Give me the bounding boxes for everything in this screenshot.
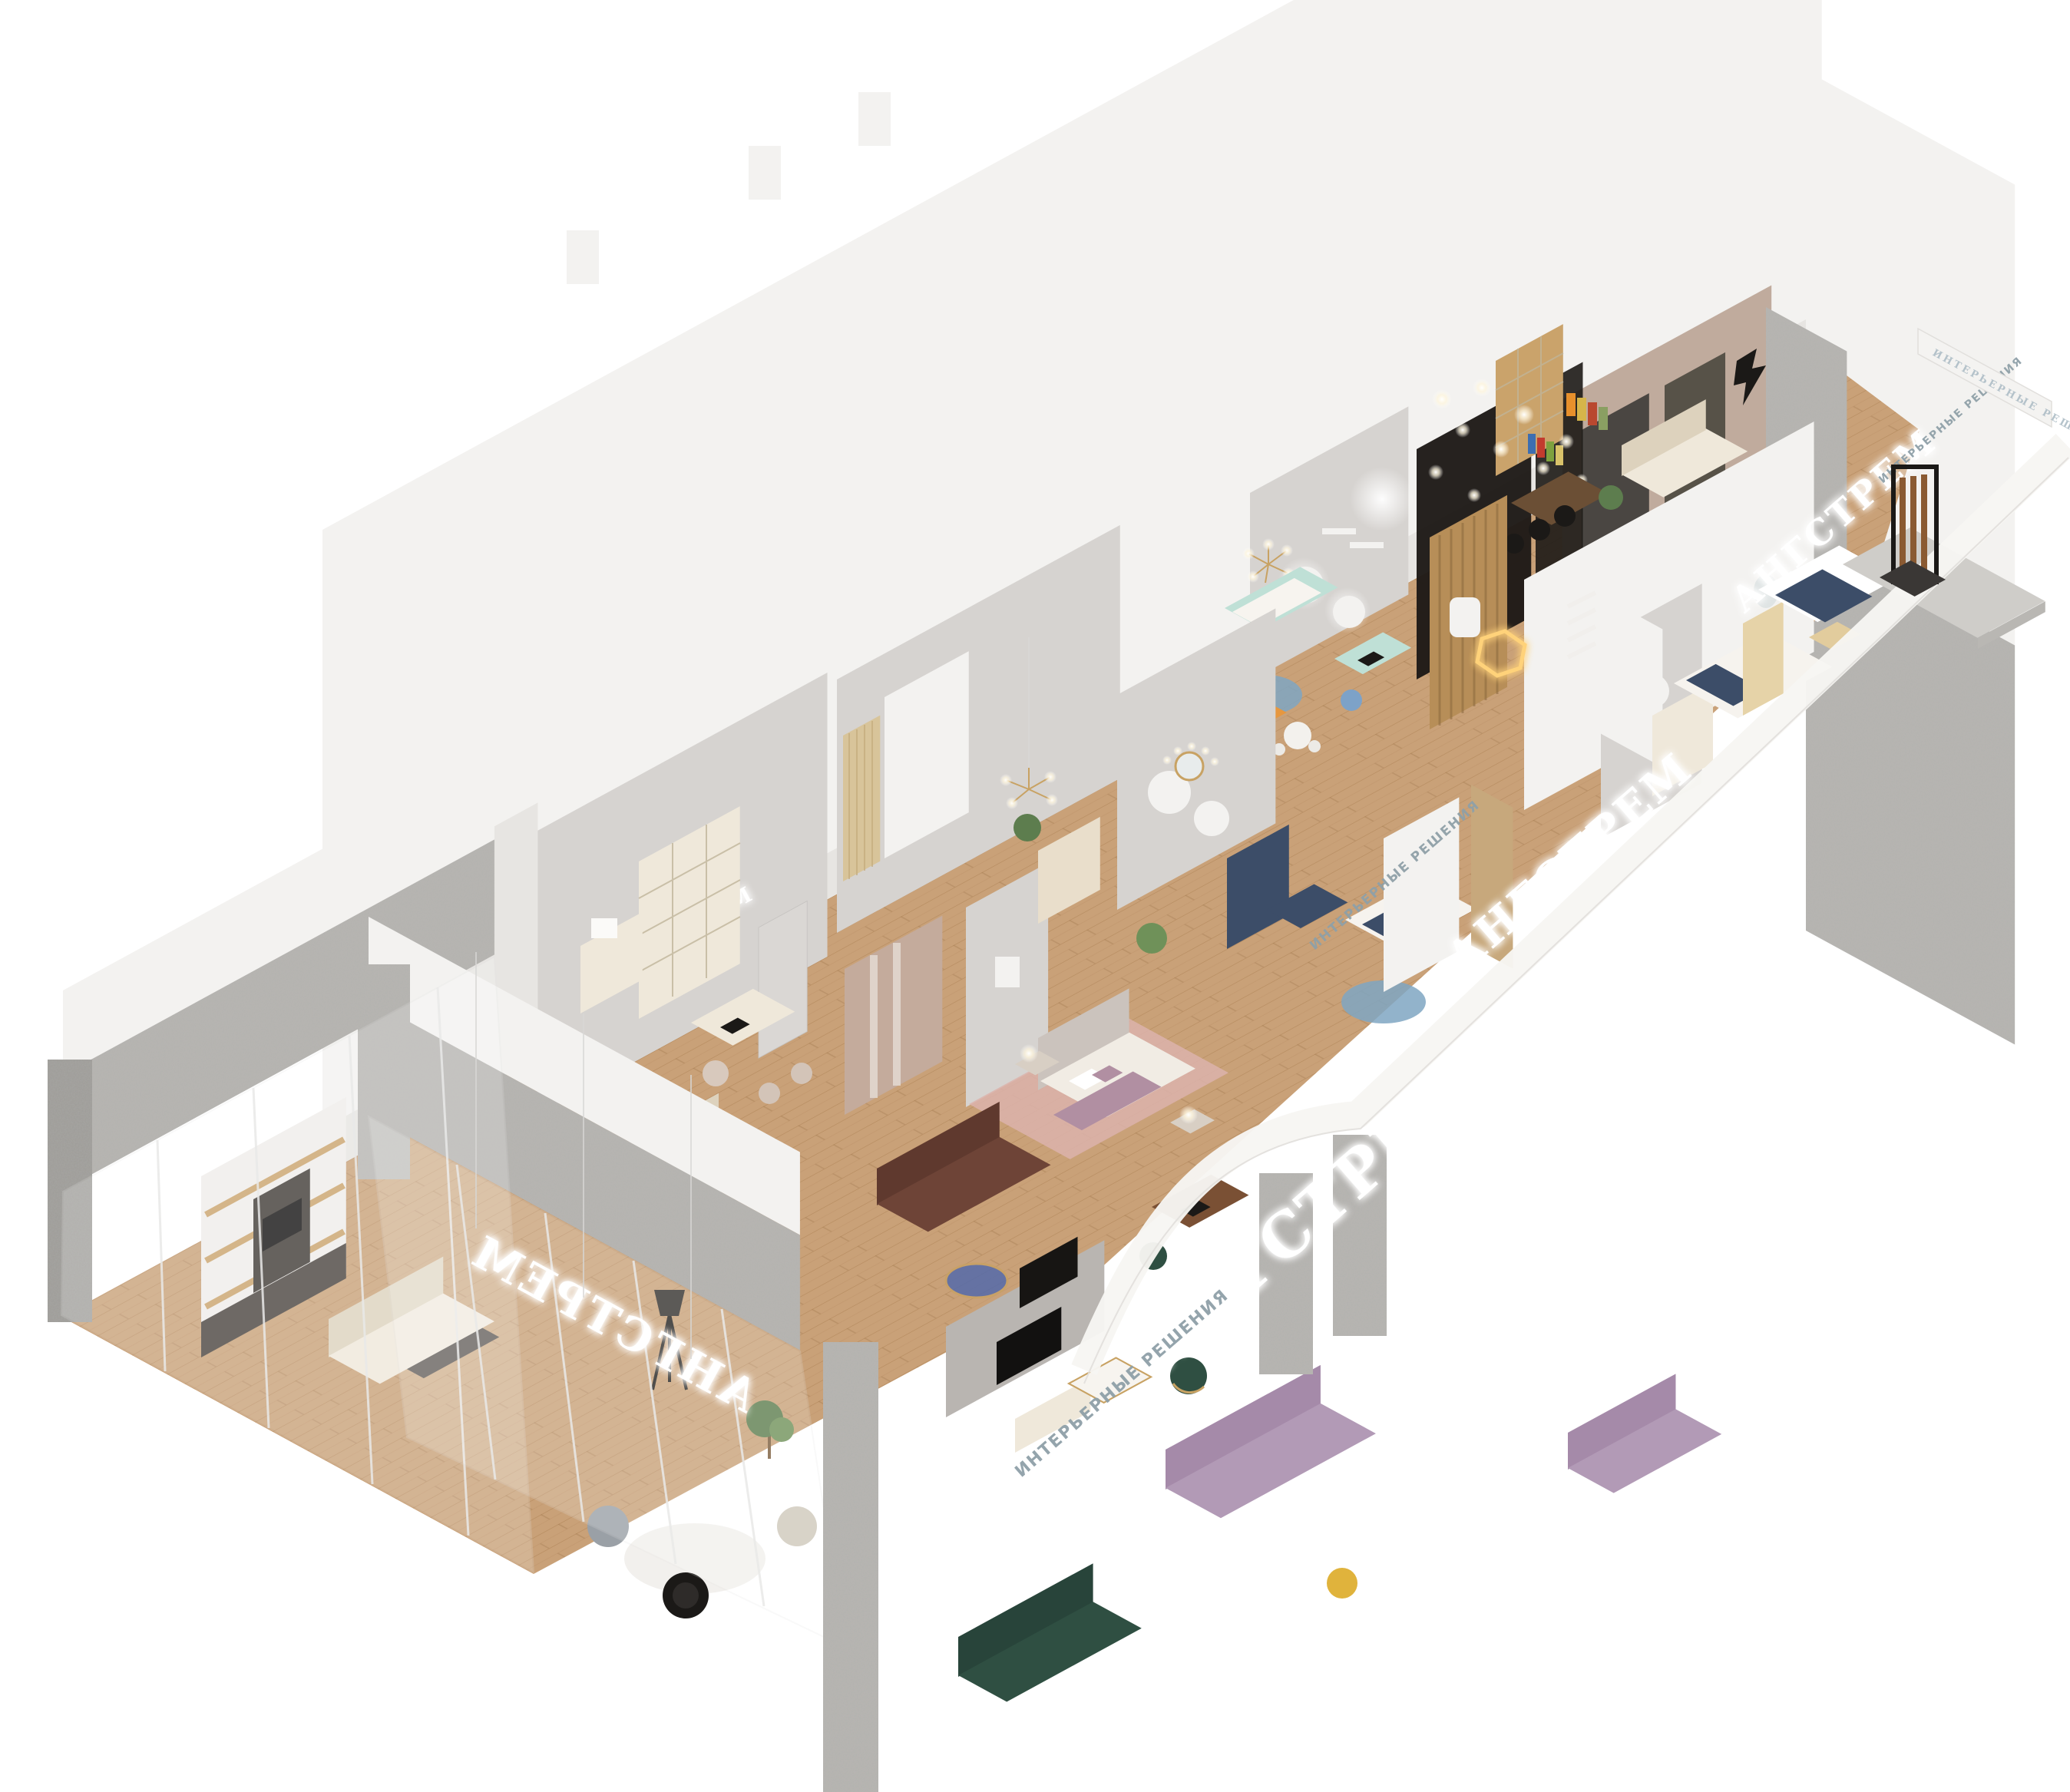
bulb <box>1247 570 1259 583</box>
crystal-chandelier <box>1350 467 1414 531</box>
partition-window-cutout <box>995 957 1020 987</box>
white-wingback-chair <box>1450 597 1480 637</box>
sample-book <box>1556 445 1563 465</box>
showroom-svg: АНГСТРЕМ <box>0 0 2070 1792</box>
kids-desk-chair-blue <box>1341 689 1362 711</box>
bulb <box>1210 757 1219 766</box>
office-chair <box>1529 519 1550 541</box>
wall-shelf <box>1350 542 1384 548</box>
bulb <box>1514 405 1534 425</box>
potted-plant <box>1136 923 1167 954</box>
tufted-office-chair <box>703 1060 729 1086</box>
bulb <box>1432 389 1452 409</box>
printer <box>591 918 617 938</box>
wall-shelf <box>1322 528 1356 534</box>
bulb <box>1046 794 1058 806</box>
sample-swatch <box>1599 407 1608 430</box>
bulb <box>1467 488 1481 502</box>
sample-book <box>1546 441 1554 461</box>
bulb <box>1187 742 1196 751</box>
bulb <box>1173 746 1182 755</box>
yellow-pouf <box>1327 1568 1357 1599</box>
sample-book <box>1537 438 1545 458</box>
kids-table <box>1284 722 1311 749</box>
bulb <box>1281 544 1293 557</box>
sample-swatch <box>1577 398 1586 421</box>
bulb <box>1473 379 1491 397</box>
sample-swatch <box>1566 393 1576 416</box>
bulb <box>1536 461 1550 475</box>
bulb <box>1162 755 1172 765</box>
back-wall-pilaster <box>749 146 781 200</box>
kids-chair <box>1308 740 1321 752</box>
office-chair <box>1554 505 1576 527</box>
bulb <box>1044 771 1056 783</box>
table-lamp <box>1179 1106 1198 1124</box>
table-lamp <box>1020 1044 1038 1063</box>
bulb <box>1262 538 1275 550</box>
wall-circle-lamp <box>1333 596 1365 628</box>
blue-glass-table <box>946 1264 1007 1298</box>
back-wall-pilaster <box>567 230 599 284</box>
back-wall-pilaster <box>858 92 891 146</box>
showroom-render: АНГСТРЕМ <box>0 0 2070 1792</box>
bulb <box>1493 441 1510 458</box>
bulb <box>1201 746 1210 755</box>
bulb <box>1455 422 1470 438</box>
visitor-chair <box>759 1083 780 1104</box>
round-mirror <box>1176 752 1203 780</box>
black-side-table-inner <box>673 1582 699 1609</box>
bulb <box>1000 774 1012 786</box>
potted-plant <box>1014 814 1041 841</box>
bulb <box>1559 434 1574 449</box>
partition-round-cutout <box>1194 801 1229 836</box>
bulb <box>1242 547 1255 560</box>
sample-book <box>1528 434 1536 454</box>
bulb <box>1006 797 1018 809</box>
sample-swatch <box>1588 402 1597 425</box>
bottom-corner-pillar <box>823 1342 878 1792</box>
bulb <box>1428 465 1443 480</box>
office-door <box>759 901 807 1058</box>
potted-plant <box>1599 485 1623 510</box>
visitor-chair <box>791 1063 812 1084</box>
